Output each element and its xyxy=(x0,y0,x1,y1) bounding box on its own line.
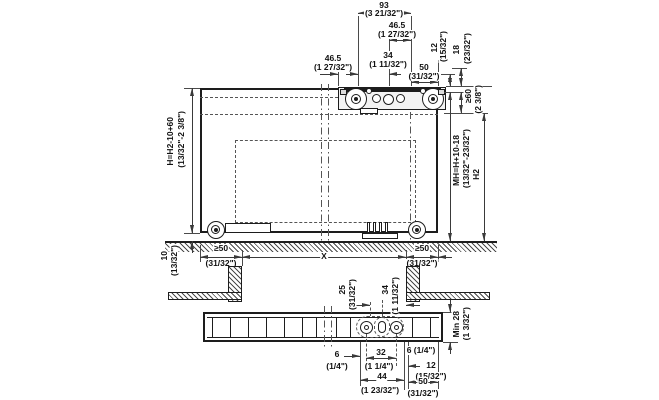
dim-46-5-top-inch: (1 27/32") xyxy=(377,30,417,39)
panel-rib xyxy=(316,317,317,337)
dim-arrow-34 xyxy=(346,74,358,75)
dim-h-formula: H=H2-10+60 xyxy=(166,116,175,167)
extension-line xyxy=(358,16,359,86)
plan-dim-44-mm: 44 xyxy=(376,372,387,381)
track-hidden-line xyxy=(200,97,338,98)
break-centerline xyxy=(321,84,322,250)
plan-dim-25-mm: 25 xyxy=(338,284,347,295)
dim-arrow-min28 xyxy=(450,300,451,312)
dim-arrow-6-left xyxy=(344,356,360,357)
dim-line-50 xyxy=(411,82,438,83)
plan-dim-34-inch: (1 11/32") xyxy=(391,276,400,316)
guide-screw-center xyxy=(394,325,399,330)
dim-x-label: X xyxy=(320,252,328,261)
bottom-roller-axle xyxy=(214,228,218,232)
hidden-extension xyxy=(396,334,397,366)
panel-rib xyxy=(230,317,231,337)
dim-h2-label: H2 xyxy=(472,168,481,181)
guide-fin xyxy=(385,222,388,233)
panel-inner-edge xyxy=(207,337,439,338)
dim-10-mm: 10 xyxy=(160,250,169,261)
wall-section-left xyxy=(168,292,242,300)
plan-dim-50-inch: (31/32") xyxy=(407,389,440,398)
dim-arrow-25 xyxy=(356,305,370,306)
plan-dim-12-mm: 12 xyxy=(425,361,436,370)
dim-50-inch: (31/32") xyxy=(408,72,441,81)
sliding-door-installation-diagram: 93 (3 21/32") 46.5 (1 27/32") 34 (1 11/3… xyxy=(0,0,659,400)
panel-rib xyxy=(350,317,351,337)
dim-arrow-10 xyxy=(192,241,193,253)
break-centerline xyxy=(324,306,325,348)
plan-dim-32-inch: (1 1/4") xyxy=(364,362,395,371)
fixing-screw xyxy=(420,88,426,94)
adjustment-bolt xyxy=(383,94,394,105)
dim-arrow-12 xyxy=(408,366,420,367)
dim-arrow-34 xyxy=(406,305,420,306)
panel-rib xyxy=(212,317,213,337)
plan-dim-32-mm: 32 xyxy=(375,348,386,357)
track-hidden-line xyxy=(200,114,438,115)
guide-screw-center xyxy=(364,325,369,330)
plan-dim-44-inch: (1 23/32") xyxy=(360,386,400,395)
dim-h-inch: (13/32"-2 3/8") xyxy=(177,110,186,169)
dim-93-inch: (3 21/32") xyxy=(364,9,404,18)
dim-line-18 xyxy=(461,68,462,86)
dim-line-12 xyxy=(450,74,451,86)
panel-rib xyxy=(336,317,337,337)
dim-min50-right-mm: ≥50 xyxy=(414,244,430,253)
dim-mh-formula: MH=H+10-18 xyxy=(452,134,461,187)
extension-line xyxy=(200,245,201,262)
carriage-notch xyxy=(360,108,378,114)
break-centerline xyxy=(328,84,329,250)
reference-line xyxy=(184,233,200,234)
panel-rib xyxy=(248,317,249,337)
roller-axle xyxy=(431,97,435,101)
guide-base xyxy=(362,233,398,239)
dim-line-46-5 xyxy=(389,40,411,41)
dim-arrow-46-5-left xyxy=(320,74,338,75)
dim-18-mm: 18 xyxy=(452,44,461,55)
plan-dim-min28-mm: Min 28 xyxy=(452,310,461,338)
reference-line xyxy=(446,86,492,87)
dim-arrow-outside xyxy=(438,257,452,258)
panel-rib xyxy=(284,317,285,337)
dim-arrow-min28 xyxy=(450,342,451,354)
dim-46-5-left-inch: (1 27/32") xyxy=(313,63,353,72)
guide-fin xyxy=(373,222,376,233)
dim-34-inch: (1 11/32") xyxy=(368,60,408,69)
adjustment-bolt xyxy=(396,94,405,103)
rear-panel-hidden-outline xyxy=(235,140,416,223)
hidden-extension xyxy=(382,300,383,317)
panel-rib xyxy=(430,317,431,337)
dim-10-inch: (13/32") xyxy=(170,244,179,277)
adjustment-bolt xyxy=(372,94,381,103)
dim-18-inch: (23/32") xyxy=(463,32,472,65)
plan-dim-50-mm: 50 xyxy=(417,377,428,386)
dim-line-h xyxy=(192,88,193,233)
dim-arrow-10 xyxy=(192,221,193,233)
plan-dim-min28-inch: (1 3/32") xyxy=(462,306,471,341)
dim-line-min60 xyxy=(461,92,462,113)
dim-line-32 xyxy=(366,358,396,359)
guide-fin xyxy=(367,222,370,233)
panel-rib xyxy=(302,317,303,337)
dim-12-inch: (15/32") xyxy=(439,30,448,63)
hidden-extension xyxy=(370,302,371,316)
wall-section-right xyxy=(406,292,490,300)
dim-arrow-34 xyxy=(389,74,401,75)
end-bolt xyxy=(340,89,347,95)
plan-dim-6-left-mm: 6 xyxy=(334,350,341,359)
guide-pin xyxy=(378,321,386,333)
panel-inner-edge xyxy=(207,317,439,318)
plan-dim-34-mm: 34 xyxy=(381,284,390,295)
plan-dim-6-right: 6 (1/4") xyxy=(406,346,437,355)
dim-min50-left-mm: ≥50 xyxy=(213,244,229,253)
extension-line xyxy=(360,342,361,390)
roller-axle xyxy=(354,97,358,101)
break-centerline xyxy=(331,306,332,348)
fixing-screw xyxy=(366,88,372,94)
guide-centerline xyxy=(410,112,411,240)
guide-fin xyxy=(379,222,382,233)
dim-min60-inch: (2 3/8") xyxy=(474,84,483,115)
panel-rib xyxy=(266,317,267,337)
dim-line-h2 xyxy=(484,113,485,241)
plan-dim-25-inch: (31/32") xyxy=(348,278,357,311)
dim-mh-inch: (13/32"-23/32") xyxy=(462,128,471,189)
plan-dim-6-left-inch: (1/4") xyxy=(325,362,349,371)
bottom-roller-axle xyxy=(415,228,419,232)
bottom-roller-housing xyxy=(225,223,271,233)
dim-min60-mm: ≥60 xyxy=(464,88,473,104)
panel-rib xyxy=(412,317,413,337)
